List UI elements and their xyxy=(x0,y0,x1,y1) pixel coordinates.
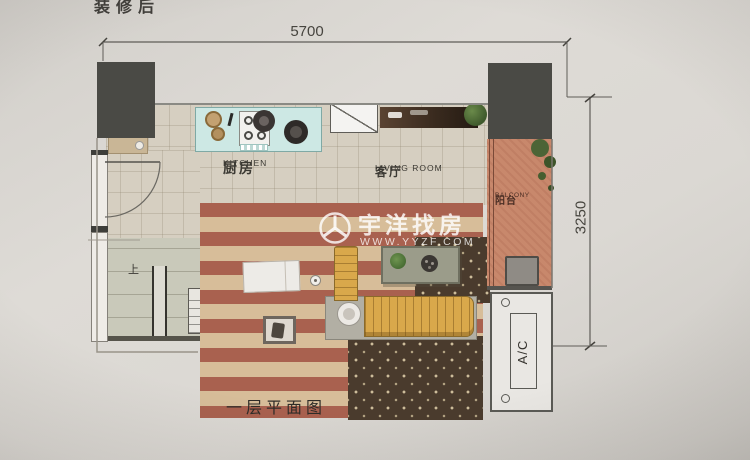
wardrobe-symbol xyxy=(330,103,378,133)
stairs-up-label: 上 xyxy=(128,261,148,277)
sink-icon xyxy=(284,120,308,144)
plant-icon xyxy=(390,253,406,269)
balcony-parapet xyxy=(487,286,552,290)
washing-machine-icon xyxy=(505,256,539,286)
sink-drain xyxy=(290,126,302,138)
plate-icon xyxy=(205,111,222,128)
renovation-status-label: 装修后 xyxy=(94,0,160,17)
basin-inner xyxy=(343,308,355,320)
kitchen-label-en: KITCHEN xyxy=(223,158,267,168)
dimension-tick xyxy=(563,38,571,46)
left-wall-upper xyxy=(91,150,108,227)
dimension-tick xyxy=(585,94,595,102)
platform-bolt xyxy=(501,394,510,403)
stair-bottom-wall xyxy=(108,336,203,341)
entry-floor xyxy=(99,150,200,242)
tv-icon xyxy=(263,316,296,344)
floorplan-photo: 装修后 上 xyxy=(0,0,750,460)
bed xyxy=(242,260,300,293)
dimension-label-width: 5700 xyxy=(283,23,331,40)
wok-center xyxy=(259,116,269,126)
wall-cap xyxy=(91,226,108,232)
console-item xyxy=(410,110,428,115)
bowl-icon xyxy=(421,255,438,272)
dimension-tick xyxy=(585,342,595,350)
burner-icon xyxy=(244,116,253,125)
watermark: 宇洋找房 WWW.YYZF.COM xyxy=(315,206,485,254)
watermark-logo-icon xyxy=(318,211,352,245)
living-label-en: LIVING ROOM xyxy=(375,163,443,173)
bed-fold-line xyxy=(284,262,286,291)
plate-icon xyxy=(211,127,225,141)
wall-cap xyxy=(91,150,108,155)
console-item xyxy=(388,112,402,118)
lamp-icon xyxy=(310,275,321,286)
plant-icon xyxy=(531,139,549,157)
sofa-vertical-section xyxy=(334,246,358,301)
balcony-label-en: BALCONY xyxy=(495,192,530,199)
stair-handrail xyxy=(152,266,167,341)
structural-column-right xyxy=(488,63,552,139)
watermark-site: WWW.YYZF.COM xyxy=(360,236,475,248)
plant-icon xyxy=(464,103,487,126)
lamp-bulb xyxy=(314,279,317,282)
burner-icon xyxy=(244,131,253,140)
structural-column-left xyxy=(97,62,155,138)
wok-icon xyxy=(253,110,275,132)
tv-screen-art xyxy=(271,322,285,339)
dimension-tick xyxy=(99,38,107,46)
floor-basin xyxy=(337,302,361,326)
ac-label: A/C xyxy=(515,327,531,377)
left-wall-lower xyxy=(91,232,108,342)
platform-bolt xyxy=(501,298,510,307)
sliding-door-track xyxy=(489,139,494,288)
dimension-label-height: 3250 xyxy=(573,195,588,241)
counter-vent xyxy=(240,144,268,151)
burner-icon xyxy=(257,131,266,140)
sofa-horizontal-section xyxy=(364,296,474,337)
watermark-brand: 宇洋找房 xyxy=(358,206,466,240)
basin-bowl xyxy=(135,141,144,150)
entry-basin xyxy=(108,137,148,154)
tv-console xyxy=(380,107,478,128)
star-rug-bottom xyxy=(348,336,483,420)
floor-caption: 一层平面图 xyxy=(226,394,356,418)
bowl-contents xyxy=(425,260,428,263)
